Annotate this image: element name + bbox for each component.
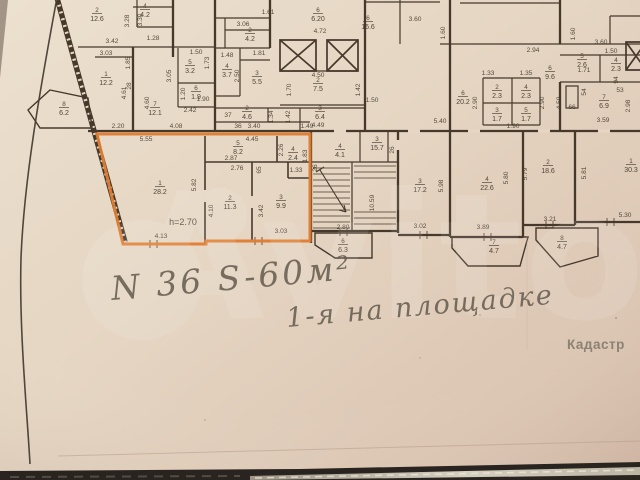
dim-label: 1.35 (520, 70, 533, 77)
svg-text:2.3: 2.3 (611, 66, 621, 73)
dim-label: 3.06 (237, 21, 250, 28)
dim-label: 2.98 (625, 99, 632, 112)
svg-text:4.2: 4.2 (245, 36, 255, 43)
dim-label: 1.85 (125, 56, 132, 69)
svg-text:5: 5 (236, 140, 240, 147)
svg-text:3: 3 (495, 107, 499, 114)
dim-label: 1.42 (355, 83, 362, 96)
dim-label: 3.42 (106, 38, 119, 45)
dim-label: 1.33 (482, 70, 495, 77)
svg-text:6: 6 (194, 85, 198, 92)
svg-text:7.5: 7.5 (313, 86, 323, 93)
dim-label: 3.28 (124, 14, 131, 27)
svg-text:6.20: 6.20 (311, 16, 325, 23)
dim-label: 2.26 (278, 143, 285, 156)
svg-text:4: 4 (614, 57, 618, 64)
dim-label: 1.70 (286, 83, 293, 96)
svg-text:4.6: 4.6 (242, 114, 252, 121)
svg-text:6.4: 6.4 (315, 114, 325, 121)
svg-text:5.5: 5.5 (252, 79, 262, 86)
svg-text:12.1: 12.1 (148, 110, 162, 117)
dim-label: 28 (126, 82, 133, 90)
svg-text:3.2: 3.2 (185, 68, 195, 75)
dim-label: 37 (224, 112, 232, 119)
dim-label: 1.90 (507, 123, 520, 130)
svg-text:6: 6 (461, 90, 465, 97)
dim-label: 1.71 (578, 67, 591, 74)
dim-label: 1.61 (262, 9, 275, 16)
svg-text:6.2: 6.2 (59, 110, 69, 117)
svg-text:12.6: 12.6 (90, 16, 104, 23)
svg-text:4: 4 (524, 84, 528, 91)
svg-text:5: 5 (580, 53, 584, 60)
dim-label: 5.40 (434, 118, 447, 125)
dim-label: 4.50 (312, 72, 325, 79)
dim-label: 2.90 (472, 96, 479, 109)
floor-plan-photo: 212.644.2112.286.2712.153.261.943.735.52… (0, 0, 640, 480)
dim-label: 1.28 (147, 35, 160, 42)
dim-label: 1.20 (180, 87, 187, 100)
dim-label: 4.72 (314, 28, 327, 35)
dim-label: 54 (581, 88, 588, 96)
avito-watermark: Avito (82, 157, 640, 360)
svg-text:6.9: 6.9 (599, 103, 609, 110)
dim-label: 4.45 (246, 136, 259, 143)
svg-text:2: 2 (245, 105, 249, 112)
svg-text:1: 1 (104, 71, 108, 78)
dim-label: 3.60 (595, 39, 608, 46)
dim-label: 2.42 (184, 107, 197, 114)
svg-text:4: 4 (225, 63, 229, 70)
svg-text:20.2: 20.2 (456, 99, 470, 106)
svg-text:2: 2 (495, 84, 499, 91)
dim-label: 26 (389, 146, 396, 154)
dim-label: 4.08 (170, 123, 183, 130)
avito-watermark-text: Avito (129, 157, 640, 360)
svg-text:2: 2 (248, 27, 252, 34)
dim-label: 53 (616, 87, 624, 94)
dim-label: 2.90 (539, 96, 546, 109)
svg-text:6: 6 (548, 65, 552, 72)
dim-label: 3.05 (166, 69, 173, 82)
svg-text:2: 2 (95, 7, 99, 14)
dim-label: 3.03 (100, 50, 113, 57)
dim-label: 3.40 (248, 123, 261, 130)
dim-label: 3.60 (409, 16, 422, 23)
dim-label: 4.49 (312, 122, 325, 129)
dim-label: 1.90 (197, 96, 210, 103)
svg-text:4: 4 (338, 143, 342, 150)
svg-text:1.7: 1.7 (521, 116, 531, 123)
dim-label: 5.55 (140, 136, 153, 143)
dim-label: 1.34 (268, 110, 275, 123)
dim-label: 2.94 (527, 47, 540, 54)
svg-text:16.6: 16.6 (361, 24, 375, 31)
dim-label: 1.42 (285, 110, 292, 123)
svg-text:6: 6 (316, 7, 320, 14)
dim-label: 66 (568, 104, 576, 111)
svg-text:3: 3 (375, 136, 379, 143)
svg-text:3: 3 (318, 105, 322, 112)
svg-text:1.7: 1.7 (492, 116, 502, 123)
svg-text:4: 4 (291, 146, 295, 153)
dim-label: 4.60 (144, 96, 151, 109)
svg-text:7: 7 (153, 101, 157, 108)
svg-text:6: 6 (366, 15, 370, 22)
svg-text:5: 5 (524, 107, 528, 114)
svg-text:7: 7 (602, 94, 606, 101)
dim-label: 3.59 (597, 117, 610, 124)
dim-label: 1.60 (440, 26, 447, 39)
svg-text:3.7: 3.7 (222, 72, 232, 79)
dim-label: 1.73 (204, 56, 211, 69)
svg-text:12.2: 12.2 (99, 80, 113, 87)
svg-text:5: 5 (188, 59, 192, 66)
table-left-glints (10, 476, 240, 477)
svg-text:2.3: 2.3 (521, 93, 531, 100)
dim-label: 1.50 (190, 49, 203, 56)
kadastr-label: Кадастр (567, 337, 625, 352)
dim-label: 4.59 (556, 96, 563, 109)
dim-label: 2.20 (112, 123, 125, 130)
dim-label: 1.49 (301, 123, 314, 130)
dim-label: 3.30 (137, 13, 144, 26)
dim-label: 1.60 (570, 27, 577, 40)
dim-label: 1.50 (366, 97, 379, 104)
dim-label: 94 (613, 76, 620, 84)
dim-label: 2.50 (234, 69, 241, 82)
dim-label: 1.50 (605, 48, 618, 55)
svg-text:15.7: 15.7 (370, 145, 384, 152)
svg-text:3: 3 (255, 70, 259, 77)
svg-text:2.3: 2.3 (492, 93, 502, 100)
dim-label: 1.48 (221, 52, 234, 59)
dim-label: 1.81 (253, 50, 266, 57)
svg-text:4: 4 (143, 3, 147, 10)
dim-label: 36 (234, 123, 242, 130)
svg-text:8: 8 (62, 101, 66, 108)
svg-text:9.6: 9.6 (545, 74, 555, 81)
